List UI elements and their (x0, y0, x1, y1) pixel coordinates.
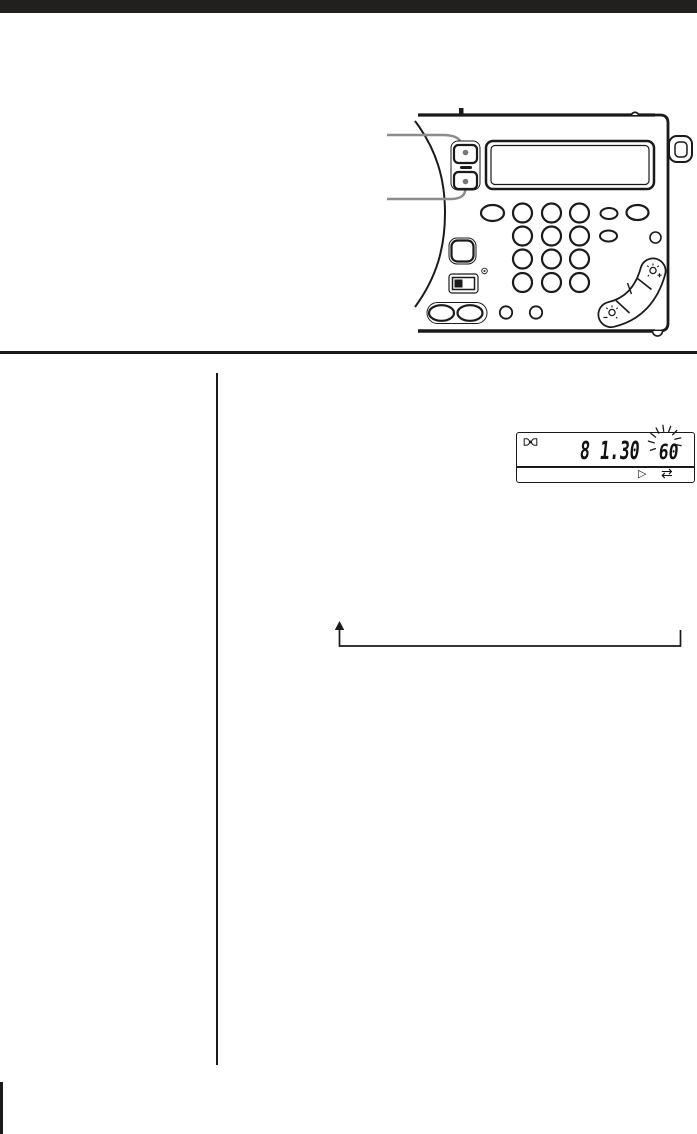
arrowhead-up (335, 621, 344, 630)
bottom-notch (653, 331, 663, 336)
top-bump (631, 112, 639, 115)
top-switch-nub (459, 108, 464, 115)
small-button-b (530, 306, 542, 318)
button-separator-bar (460, 166, 472, 169)
power-button (449, 238, 476, 264)
sleep-up-down-buttons (451, 141, 480, 190)
band-pill-buttons (427, 303, 487, 324)
blinking-burst-icon (643, 423, 687, 453)
small-button-a (500, 306, 512, 318)
manual-page: 8 1.30 60 ▷ ⇄ (0, 0, 697, 1134)
small-oval-button-1 (601, 208, 618, 219)
section-divider (0, 351, 697, 354)
band-oval-button (481, 205, 504, 221)
sync-arrows-icon: ⇄ (661, 465, 672, 482)
radio-illustration (385, 95, 697, 341)
small-oval-button-2 (600, 231, 617, 242)
callout-dot-top (463, 150, 469, 156)
repeat-bracket-arrow (330, 616, 692, 652)
standby-indicator-icon (523, 438, 538, 446)
hold-slider (449, 274, 478, 293)
page-header-bar (0, 0, 697, 13)
callout-dot-bottom (463, 179, 469, 185)
lcd-detail-figure: 8 1.30 60 ▷ ⇄ (516, 432, 695, 483)
page-edge-mark (0, 1082, 3, 1134)
column-divider (216, 373, 218, 1065)
strap-holder (669, 136, 692, 162)
small-round-button (650, 232, 661, 243)
play-indicator-icon: ▷ (638, 466, 646, 483)
oval-button-right (627, 205, 649, 220)
display-window (486, 141, 654, 189)
frequency-display: 8 1.30 (578, 438, 640, 463)
